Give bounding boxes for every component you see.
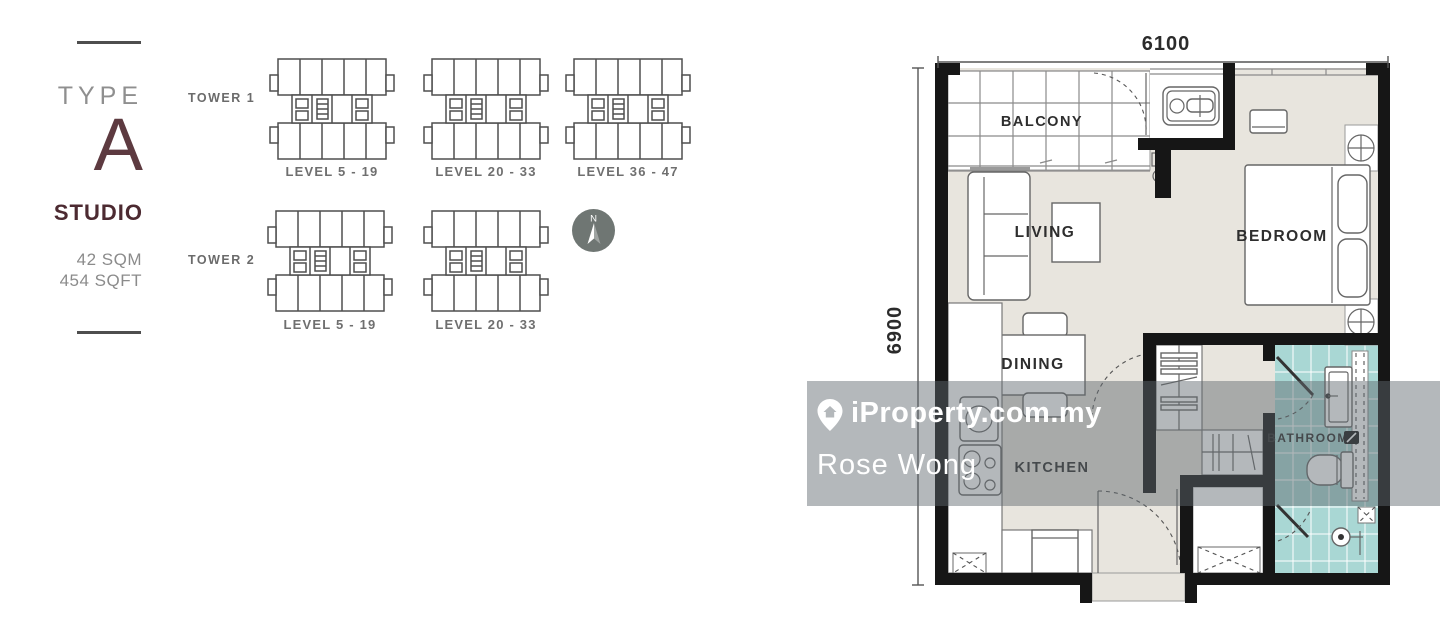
- floorplan-page: { "unit": { "type_label": "TYPE", "type_…: [0, 0, 1440, 634]
- watermark-band: iProperty.com.my Rose Wong: [807, 381, 1440, 506]
- watermark-agent: Rose Wong: [817, 449, 977, 482]
- tower1-level-range-3: LEVEL 36 - 47: [565, 164, 691, 179]
- tower2-label: TOWER 2: [188, 253, 255, 267]
- type-letter: A: [0, 108, 143, 182]
- bottom-divider: [77, 331, 141, 334]
- tower1-level-range-2: LEVEL 20 - 33: [423, 164, 549, 179]
- keyplan-tower1-level5-19: [269, 56, 395, 162]
- iproperty-pin-icon: [816, 398, 844, 432]
- fridge-icon: [1032, 530, 1078, 573]
- keyplan-tower1-level20-33: [423, 56, 549, 162]
- living-label: LIVING: [1015, 224, 1076, 241]
- keyplan-tower1-level36-47: [565, 56, 691, 162]
- balcony-label: BALCONY: [1001, 114, 1083, 130]
- unit-category: STUDIO: [0, 200, 143, 226]
- bedroom-label: BEDROOM: [1236, 228, 1327, 245]
- tower2-level-range-1: LEVEL 5 - 19: [267, 317, 393, 332]
- width-dimension: 6100: [1142, 33, 1191, 55]
- compass-north-label: N: [590, 214, 597, 225]
- area-sqm: 42 SQM: [0, 250, 142, 270]
- keyplan-tower2-level5-19: [267, 208, 393, 314]
- north-compass-icon: N: [571, 208, 616, 253]
- tower2-level-range-2: LEVEL 20 - 33: [423, 317, 549, 332]
- tower1-label: TOWER 1: [188, 91, 255, 105]
- height-dimension: 6900: [884, 306, 906, 355]
- dining-label: DINING: [1001, 356, 1064, 373]
- watermark-brand: iProperty.com.my: [851, 397, 1102, 430]
- ac-ledge-box: [953, 553, 986, 573]
- keyplan-tower2-level20-33: [423, 208, 549, 314]
- tower1-level-range-1: LEVEL 5 - 19: [269, 164, 395, 179]
- bench-icon: [1250, 110, 1287, 133]
- floorplan-drawing: BALCONY LIVING BEDROOM DINING KITCHEN BA…: [880, 25, 1440, 634]
- area-sqft: 454 SQFT: [0, 271, 142, 291]
- top-divider: [77, 41, 141, 44]
